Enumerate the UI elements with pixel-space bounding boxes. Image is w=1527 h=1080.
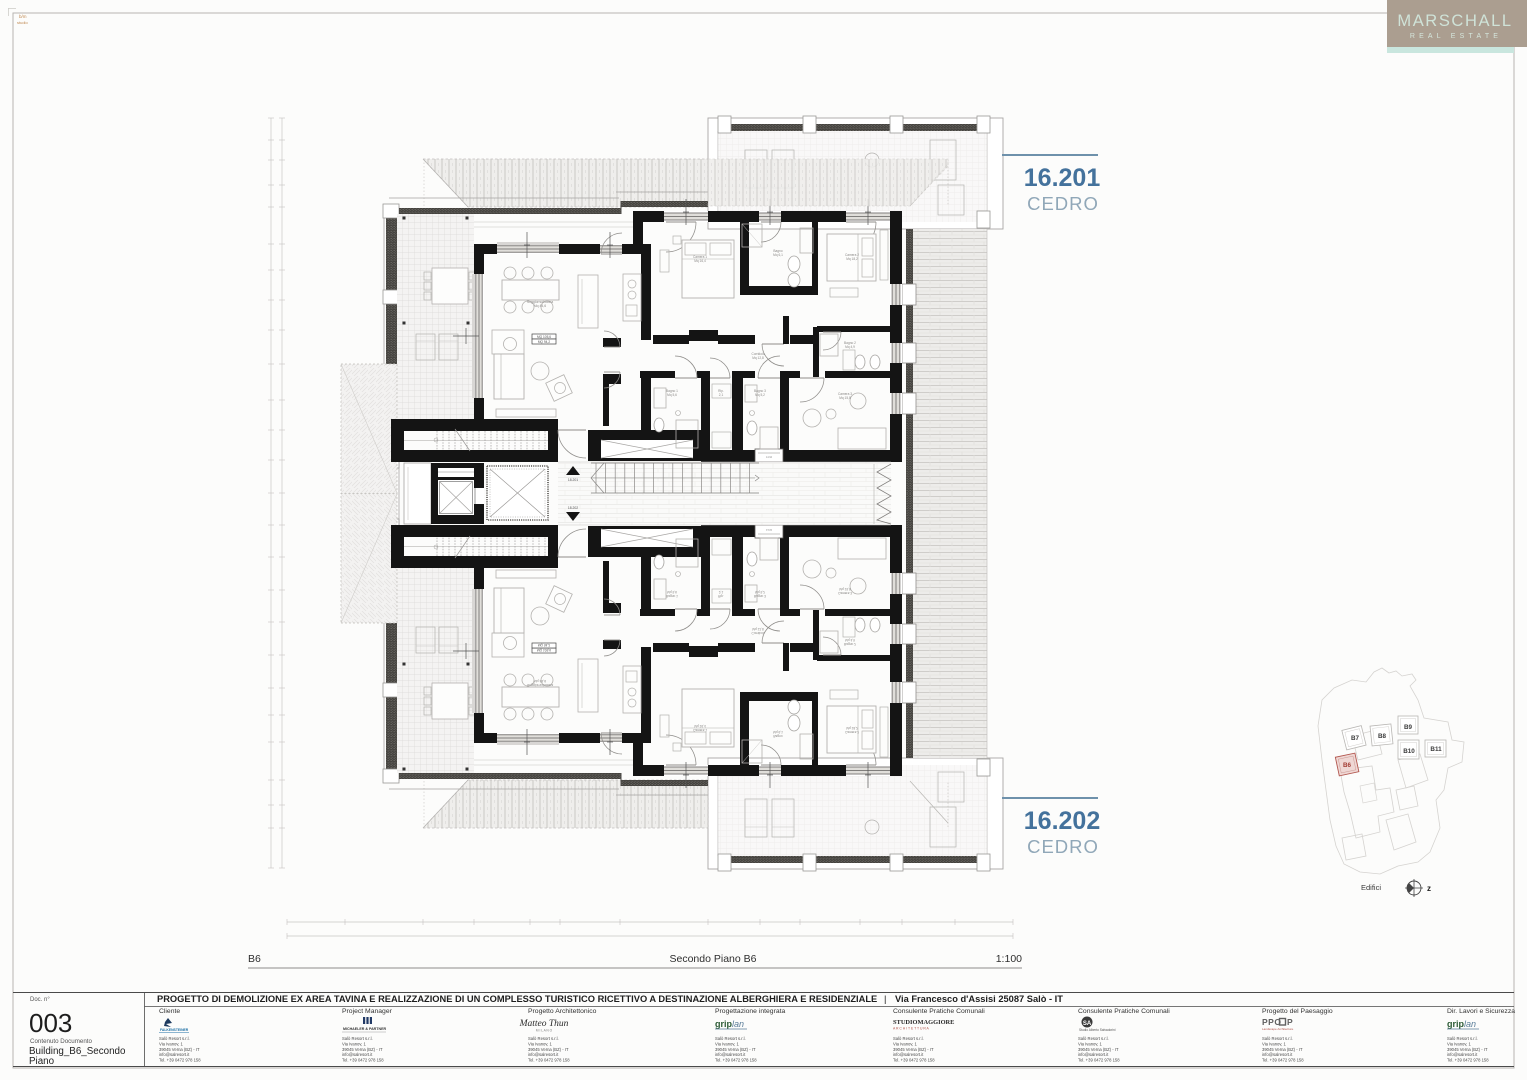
svg-text:B8: B8 <box>1378 733 1387 740</box>
svg-text:P: P <box>1287 1017 1293 1027</box>
svg-text:39045 Verna (BZ) - IT: 39045 Verna (BZ) - IT <box>1447 1047 1488 1052</box>
svg-text:16.201: 16.201 <box>1024 164 1101 192</box>
svg-text:18.201: 18.201 <box>568 478 578 482</box>
svg-text:info@salresort.it: info@salresort.it <box>1078 1052 1109 1057</box>
svg-text:Salò Resort s.r.l.: Salò Resort s.r.l. <box>1447 1036 1478 1041</box>
svg-text:Via Francesco d'Assisi 25087 S: Via Francesco d'Assisi 25087 Salò - IT <box>895 994 1063 1004</box>
svg-text:Salò Resort s.r.l.: Salò Resort s.r.l. <box>528 1036 559 1041</box>
svg-text:39045 Verna (BZ) - IT: 39045 Verna (BZ) - IT <box>893 1047 934 1052</box>
svg-text:1:100: 1:100 <box>996 953 1022 965</box>
svg-text:Project Manager: Project Manager <box>342 1008 393 1015</box>
svg-text:Via Ivanov, 1: Via Ivanov, 1 <box>342 1041 366 1046</box>
svg-text:Salò Resort s.r.l.: Salò Resort s.r.l. <box>1078 1036 1109 1041</box>
svg-text:Mq 6,1: Mq 6,1 <box>773 253 783 257</box>
svg-text:Tel. +39 0472 978 158: Tel. +39 0472 978 158 <box>342 1058 384 1063</box>
svg-text:grip: grip <box>715 1019 733 1029</box>
svg-text:Mq 16,4: Mq 16,4 <box>694 259 706 263</box>
svg-text:B6: B6 <box>248 953 261 965</box>
svg-text:Consulente Pratiche Comunali: Consulente Pratiche Comunali <box>1078 1008 1170 1015</box>
svg-text:REAL ESTATE: REAL ESTATE <box>1410 33 1502 40</box>
svg-text:Studio Alberto Salvadorini: Studio Alberto Salvadorini <box>1079 1028 1116 1032</box>
svg-text:Mq 15,8: Mq 15,8 <box>839 396 851 400</box>
svg-text:B6: B6 <box>1343 762 1352 769</box>
svg-text:Mq 18,2: Mq 18,2 <box>846 257 858 261</box>
svg-text:Salò Resort s.r.l.: Salò Resort s.r.l. <box>342 1036 373 1041</box>
svg-text:B11: B11 <box>1430 746 1442 753</box>
svg-text:Mq 44,6: Mq 44,6 <box>534 304 546 308</box>
svg-text:Contenuto Documento: Contenuto Documento <box>30 1038 92 1045</box>
svg-text:39045 Verna (BZ) - IT: 39045 Verna (BZ) - IT <box>342 1047 383 1052</box>
svg-text:Cliente: Cliente <box>159 1008 180 1015</box>
svg-text:Consulente Pratiche Comunali: Consulente Pratiche Comunali <box>893 1008 985 1015</box>
svg-text:info@salresort.it: info@salresort.it <box>1447 1052 1478 1057</box>
svg-text:39045 Verna (BZ) - IT: 39045 Verna (BZ) - IT <box>715 1047 756 1052</box>
svg-text:16.202: 16.202 <box>1024 807 1100 835</box>
svg-text:Landscape Architecture: Landscape Architecture <box>1262 1027 1294 1031</box>
svg-text:MQ 94,2: MQ 94,2 <box>538 340 550 344</box>
svg-text:info@salresort.it: info@salresort.it <box>159 1052 190 1057</box>
svg-text:18.202: 18.202 <box>568 506 578 510</box>
svg-text:info@salresort.it: info@salresort.it <box>715 1052 746 1057</box>
svg-text:A R C H I T E T T U R A: A R C H I T E T T U R A <box>893 1027 930 1031</box>
svg-text:z: z <box>1427 884 1431 893</box>
svg-text:MICHAELER & PARTNER: MICHAELER & PARTNER <box>343 1027 386 1031</box>
svg-text:Tel. +39 0472 978 158: Tel. +39 0472 978 158 <box>893 1058 935 1063</box>
svg-text:39045 Verna (BZ) - IT: 39045 Verna (BZ) - IT <box>528 1047 569 1052</box>
svg-text:Mq 12,8: Mq 12,8 <box>752 356 764 360</box>
svg-text:PPO: PPO <box>1262 1017 1281 1027</box>
svg-text:Progettazione integrata: Progettazione integrata <box>715 1008 786 1015</box>
svg-text:Piano: Piano <box>29 1056 55 1067</box>
svg-text:info@salresort.it: info@salresort.it <box>1262 1052 1293 1057</box>
svg-text:39045 Verna (BZ) - IT: 39045 Verna (BZ) - IT <box>1262 1047 1303 1052</box>
svg-text:Tel. +39 0472 978 158: Tel. +39 0472 978 158 <box>528 1058 570 1063</box>
svg-text:studio: studio <box>17 20 28 25</box>
svg-text:Via Ivanov, 1: Via Ivanov, 1 <box>715 1041 739 1046</box>
svg-text:Mq 5,2: Mq 5,2 <box>755 393 765 397</box>
svg-text:info@salresort.it: info@salresort.it <box>893 1052 924 1057</box>
svg-text:B7: B7 <box>1351 735 1360 742</box>
svg-text:Salò Resort s.r.l.: Salò Resort s.r.l. <box>893 1036 924 1041</box>
svg-text:39045 Verna (BZ) - IT: 39045 Verna (BZ) - IT <box>159 1047 200 1052</box>
svg-text:2,1: 2,1 <box>719 393 724 397</box>
svg-text:STUDIOMAGGIORE: STUDIOMAGGIORE <box>893 1019 954 1026</box>
svg-text:MARSCHALL: MARSCHALL <box>1397 12 1512 30</box>
svg-text:Via Ivanov, 1: Via Ivanov, 1 <box>1447 1041 1471 1046</box>
svg-text:FALKENSTEINER: FALKENSTEINER <box>160 1028 189 1032</box>
svg-text:B9: B9 <box>1404 724 1413 731</box>
svg-text:M I L A N O: M I L A N O <box>536 1029 553 1033</box>
svg-text:Via Ivanov, 1: Via Ivanov, 1 <box>159 1041 183 1046</box>
svg-text:Via Ivanov, 1: Via Ivanov, 1 <box>1078 1041 1102 1046</box>
svg-text:lan: lan <box>732 1019 744 1029</box>
svg-text:SA: SA <box>1083 1021 1092 1027</box>
svg-text:Progetto del Paesaggio: Progetto del Paesaggio <box>1262 1008 1333 1015</box>
svg-text:14.94: 14.94 <box>766 456 773 459</box>
svg-text:Salò Resort s.r.l.: Salò Resort s.r.l. <box>159 1036 190 1041</box>
svg-text:b/m: b/m <box>19 14 27 19</box>
svg-text:Mq 4,9: Mq 4,9 <box>845 345 855 349</box>
svg-text:Matteo Thun: Matteo Thun <box>519 1019 569 1029</box>
svg-text:info@salresort.it: info@salresort.it <box>342 1052 373 1057</box>
svg-text:Tel. +39 0472 978 158: Tel. +39 0472 978 158 <box>1078 1058 1120 1063</box>
svg-text:Dir. Lavori e Sicurezza: Dir. Lavori e Sicurezza <box>1447 1008 1515 1015</box>
svg-text:Edifici: Edifici <box>1361 883 1381 892</box>
svg-text:Salò Resort s.r.l.: Salò Resort s.r.l. <box>715 1036 746 1041</box>
svg-text:info@salresort.it: info@salresort.it <box>528 1052 559 1057</box>
svg-text:Tel. +39 0472 978 158: Tel. +39 0472 978 158 <box>715 1058 757 1063</box>
svg-text:|: | <box>884 994 886 1004</box>
svg-text:003: 003 <box>29 1008 72 1038</box>
svg-text:Tel. +39 0472 978 158: Tel. +39 0472 978 158 <box>159 1058 201 1063</box>
svg-text:grip: grip <box>1447 1019 1465 1029</box>
svg-text:Secondo Piano B6: Secondo Piano B6 <box>670 953 757 965</box>
svg-text:Salò Resort s.r.l.: Salò Resort s.r.l. <box>1262 1036 1293 1041</box>
svg-text:Tel. +39 0472 978 158: Tel. +39 0472 978 158 <box>1262 1058 1304 1063</box>
svg-text:Via Ivanov, 1: Via Ivanov, 1 <box>893 1041 917 1046</box>
svg-text:MQ 105,6: MQ 105,6 <box>537 335 551 339</box>
svg-text:CEDRO: CEDRO <box>1027 836 1099 857</box>
svg-text:Doc. n°: Doc. n° <box>30 997 50 1003</box>
svg-text:CEDRO: CEDRO <box>1027 193 1099 214</box>
svg-text:Progetto Architettonico: Progetto Architettonico <box>528 1008 597 1015</box>
svg-text:lan: lan <box>1464 1019 1476 1029</box>
svg-text:39045 Verna (BZ) - IT: 39045 Verna (BZ) - IT <box>1078 1047 1119 1052</box>
svg-text:Mq 5,6: Mq 5,6 <box>667 393 677 397</box>
svg-text:PROGETTO DI DEMOLIZIONE EX AR: PROGETTO DI DEMOLIZIONE EX AREA TAVINA E… <box>157 994 877 1004</box>
svg-text:Via Ivanov, 1: Via Ivanov, 1 <box>528 1041 552 1046</box>
svg-text:Tel. +39 0472 978 158: Tel. +39 0472 978 158 <box>1447 1058 1489 1063</box>
svg-text:B10: B10 <box>1403 748 1415 755</box>
svg-text:Via Ivanov, 1: Via Ivanov, 1 <box>1262 1041 1286 1046</box>
